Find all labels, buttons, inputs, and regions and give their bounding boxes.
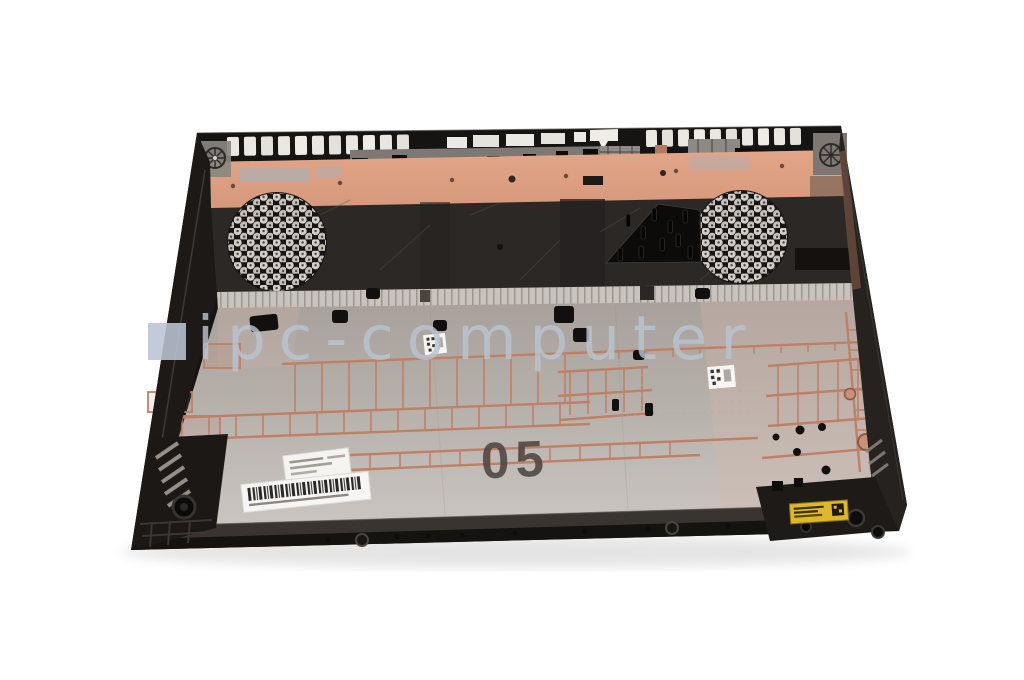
mold-marking: 05 <box>480 429 551 491</box>
qr-sticker-2 <box>707 365 736 389</box>
yellow-sticker <box>789 500 848 524</box>
qr-sticker-1 <box>423 333 447 355</box>
corner-module-right <box>756 477 898 541</box>
product-photo: ipc-computer 05 <box>0 0 1024 680</box>
speaker-grille-left <box>227 192 327 292</box>
speaker-grille-right <box>694 190 788 284</box>
bottom-case-illustration <box>0 0 1024 680</box>
